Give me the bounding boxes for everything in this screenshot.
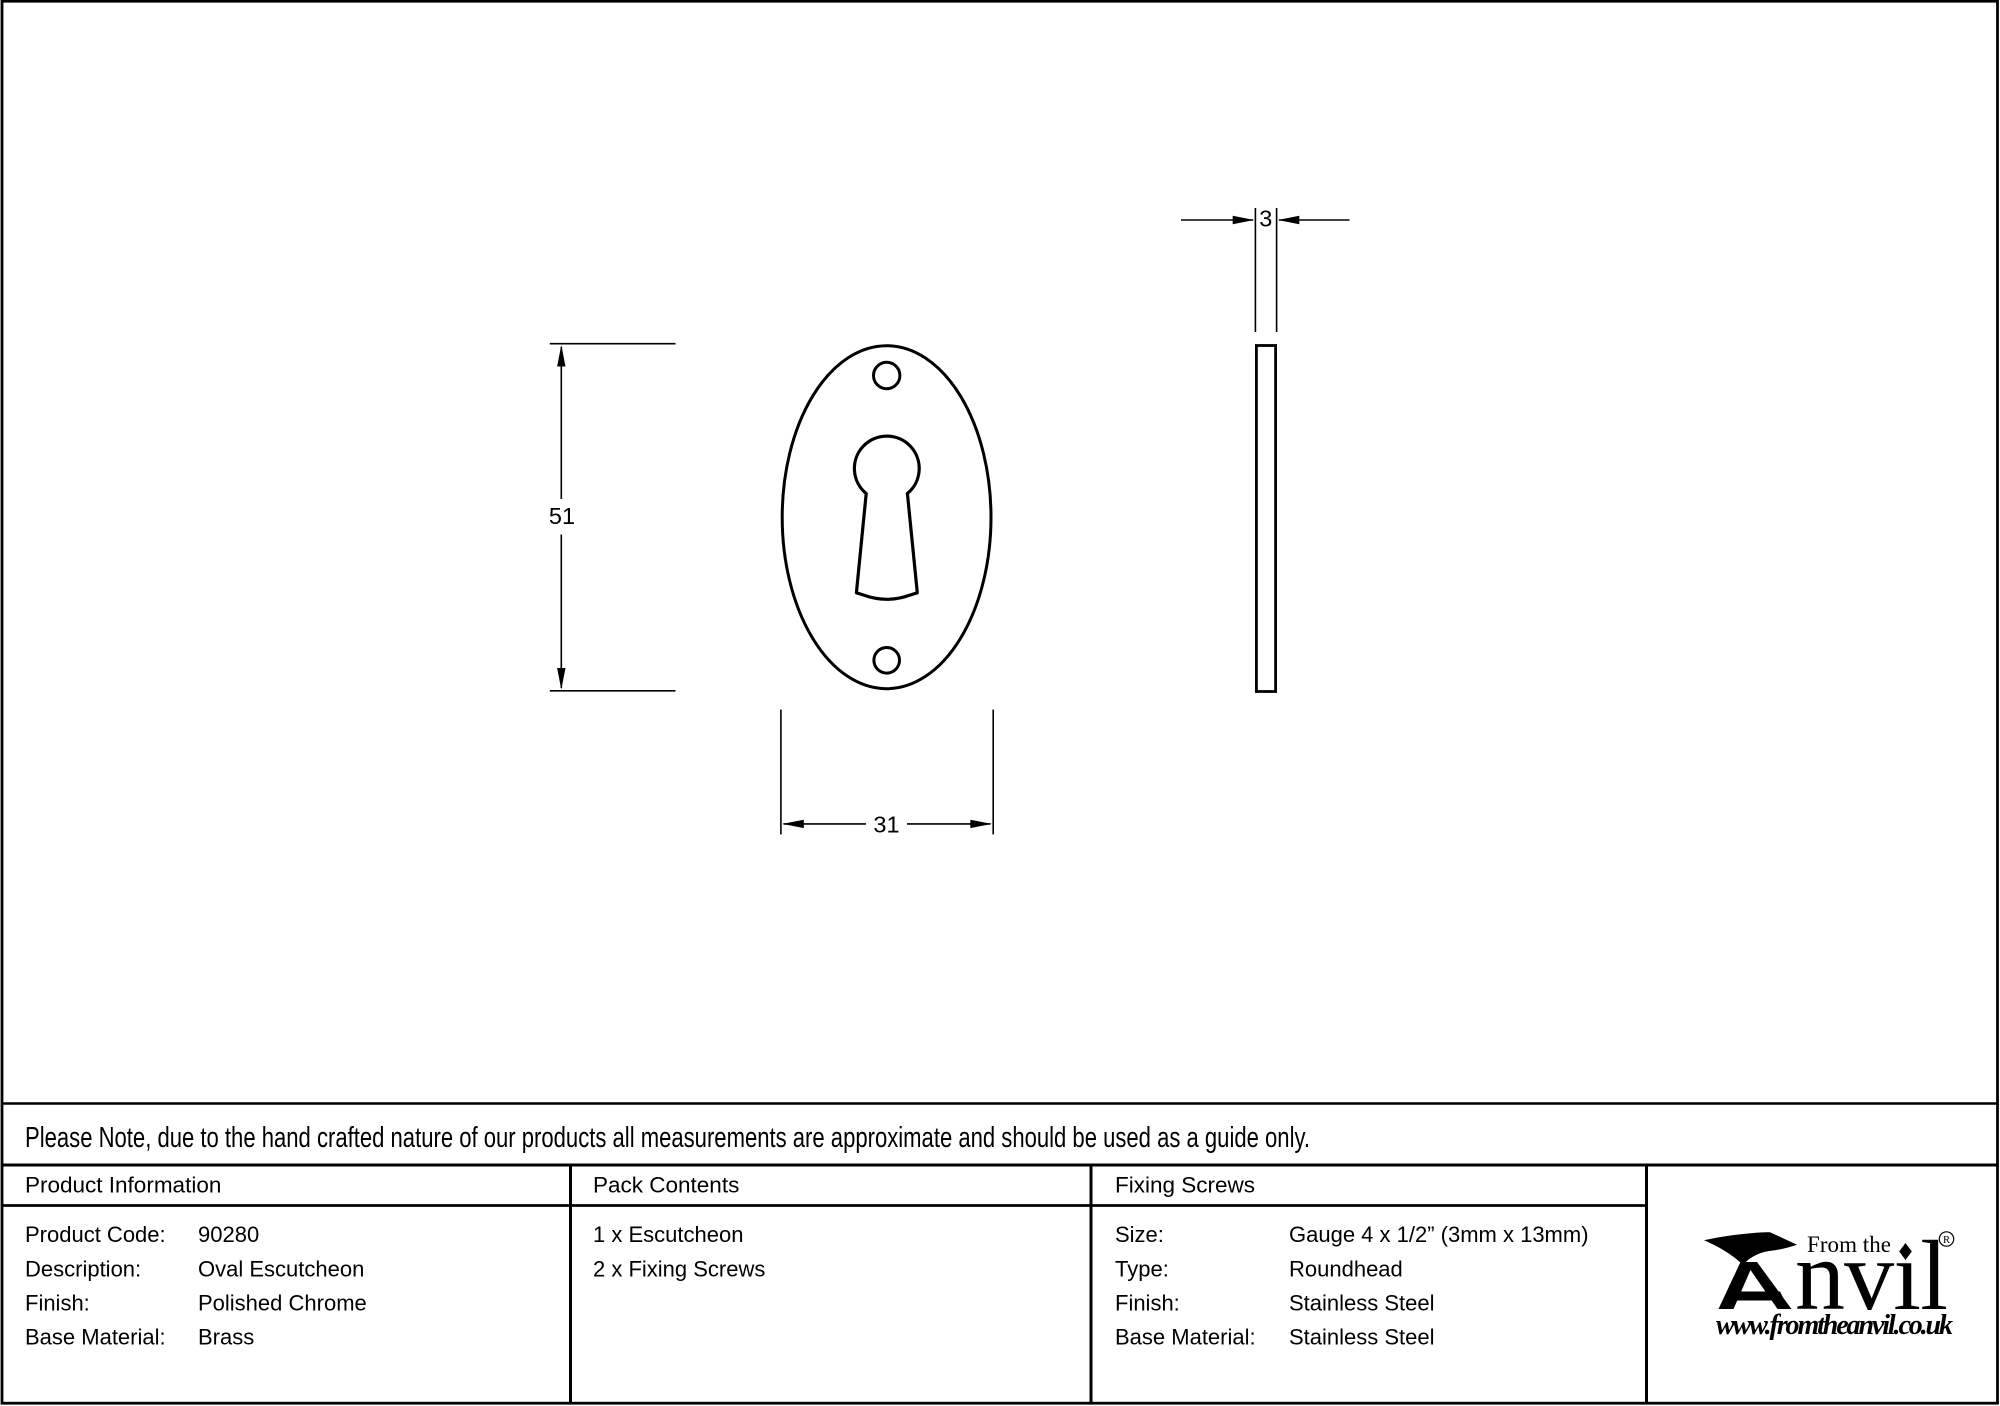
svg-text:www.fromtheanvil.co.uk: www.fromtheanvil.co.uk: [1716, 1310, 1953, 1341]
svg-text:Product Information: Product Information: [25, 1173, 221, 1198]
svg-text:90280: 90280: [198, 1222, 259, 1247]
svg-text:Size:: Size:: [1115, 1222, 1164, 1247]
svg-text:Description:: Description:: [25, 1257, 141, 1282]
svg-text:1 x Escutcheon: 1 x Escutcheon: [593, 1222, 743, 1247]
svg-text:Pack Contents: Pack Contents: [593, 1173, 739, 1198]
svg-text:2 x Fixing Screws: 2 x Fixing Screws: [593, 1257, 765, 1282]
svg-text:Stainless Steel: Stainless Steel: [1289, 1325, 1435, 1350]
svg-text:Base Material:: Base Material:: [1115, 1325, 1256, 1350]
svg-text:Gauge 4 x 1/2” (3mm x 13mm): Gauge 4 x 1/2” (3mm x 13mm): [1289, 1222, 1589, 1247]
svg-text:Brass: Brass: [198, 1325, 254, 1350]
svg-text:Finish:: Finish:: [25, 1291, 90, 1316]
svg-text:Fixing Screws: Fixing Screws: [1115, 1173, 1255, 1198]
svg-text:3: 3: [1259, 206, 1272, 232]
svg-text:Stainless Steel: Stainless Steel: [1289, 1291, 1435, 1316]
svg-text:R: R: [1943, 1235, 1950, 1246]
svg-text:Polished Chrome: Polished Chrome: [198, 1291, 367, 1316]
svg-text:Type:: Type:: [1115, 1257, 1169, 1282]
svg-text:51: 51: [549, 503, 575, 529]
svg-text:Roundhead: Roundhead: [1289, 1257, 1403, 1282]
svg-text:Product Code:: Product Code:: [25, 1222, 166, 1247]
svg-text:31: 31: [873, 812, 899, 838]
svg-text:Oval Escutcheon: Oval Escutcheon: [198, 1257, 364, 1282]
svg-text:Finish:: Finish:: [1115, 1291, 1180, 1316]
svg-text:Base Material:: Base Material:: [25, 1325, 166, 1350]
svg-text:Please Note, due to the hand c: Please Note, due to the hand crafted nat…: [25, 1122, 1310, 1154]
